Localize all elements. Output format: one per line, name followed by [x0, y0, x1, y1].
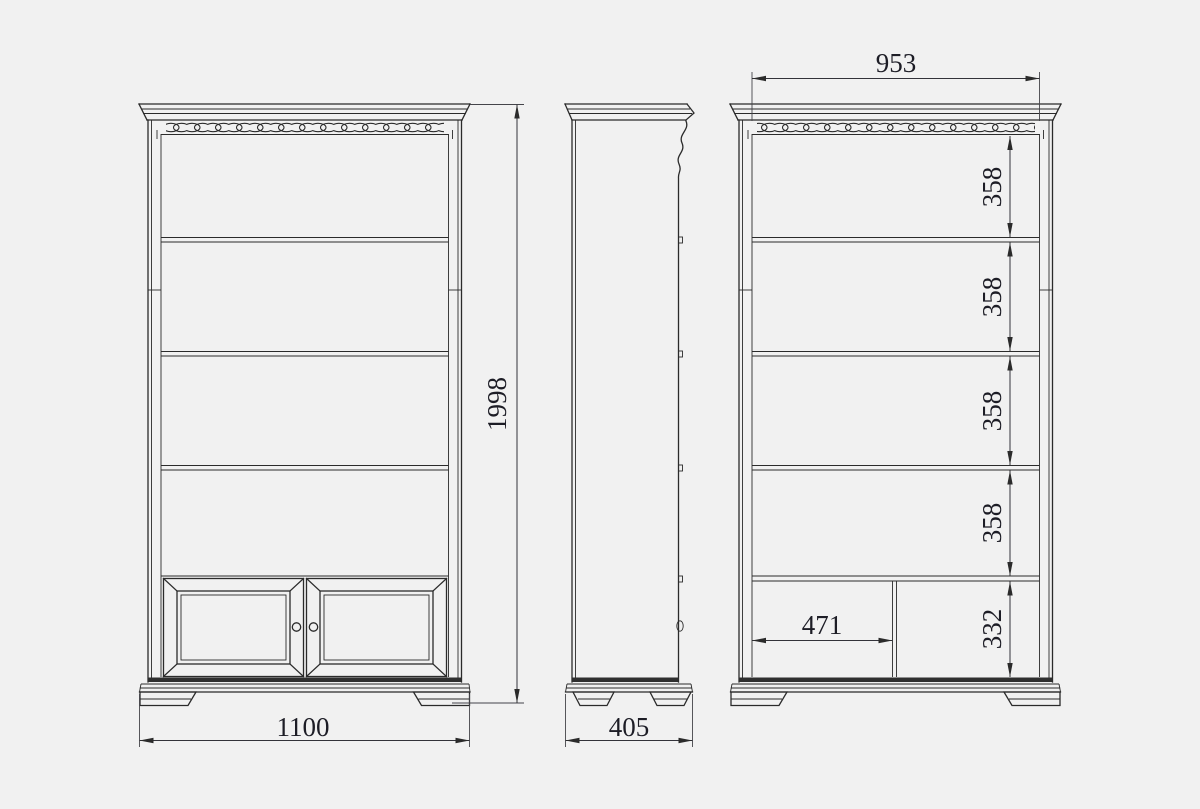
- left-door: [164, 579, 304, 677]
- scalloped-side-edge: [678, 121, 687, 682]
- internal-view: [730, 104, 1061, 706]
- bottom-board: [739, 678, 1053, 683]
- internal-feet: [731, 692, 1060, 706]
- side-feet: [573, 692, 691, 706]
- dim-compartment-height-label: 332: [977, 609, 1007, 650]
- side-body: [572, 120, 687, 682]
- dim-inner-width-label: 953: [876, 48, 917, 78]
- technical-drawing-page: 1100 1998 405 953 358 358 358 358 332: [0, 0, 1200, 809]
- internal-base: [731, 678, 1061, 706]
- front-cornice: [139, 104, 470, 120]
- dim-depth-label: 405: [609, 712, 650, 742]
- side-base: [566, 678, 693, 706]
- dim-shelf-gap-label: 358: [977, 391, 1007, 432]
- front-carcass: [148, 120, 462, 682]
- door-knob-profile: [677, 621, 683, 631]
- side-cornice: [565, 104, 694, 120]
- bookcase-dimension-drawing: 1100 1998 405 953 358 358 358 358 332: [0, 0, 1200, 809]
- lattice-frieze: [757, 122, 1035, 133]
- right-door-knob: [309, 623, 317, 631]
- dimension-inner-width: 953: [752, 48, 1040, 121]
- internal-cornice: [730, 104, 1061, 120]
- base-cabinet-doors: [164, 579, 447, 677]
- front-base: [140, 678, 471, 706]
- side-view: [565, 104, 694, 706]
- bottom-board: [148, 678, 462, 683]
- dimension-overall-height: 1998: [452, 105, 524, 704]
- dim-overall-height-label: 1998: [482, 377, 512, 431]
- left-door-knob: [292, 623, 300, 631]
- dimension-compartment-height: 332: [977, 582, 1010, 678]
- dim-compartment-width-label: 471: [802, 610, 843, 640]
- front-view: [139, 104, 470, 706]
- base-compartment-divider: [893, 581, 897, 677]
- dimension-depth: 405: [566, 694, 693, 747]
- dimension-compartment-width: 471: [752, 610, 893, 641]
- bottom-board: [572, 678, 679, 683]
- right-door: [307, 579, 447, 677]
- lattice-frieze: [166, 122, 444, 133]
- front-feet: [140, 692, 470, 706]
- dim-shelf-gap-label: 358: [977, 503, 1007, 544]
- dim-shelf-gap-label: 358: [977, 277, 1007, 318]
- dim-shelf-gap-label: 358: [977, 167, 1007, 208]
- front-shelves: [161, 238, 449, 577]
- dim-overall-width-label: 1100: [277, 712, 330, 742]
